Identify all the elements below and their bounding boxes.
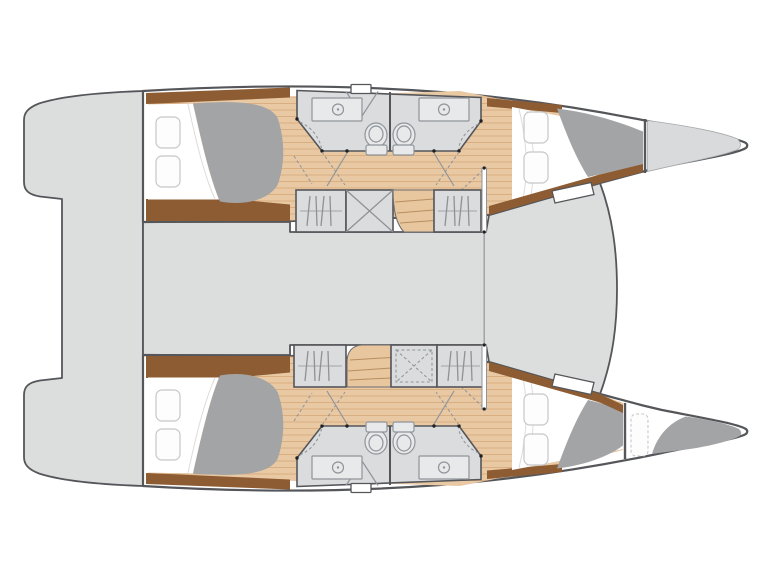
starboard-forepeak-berth <box>631 414 741 456</box>
mast-post <box>482 168 487 232</box>
companionway-stairs <box>347 345 391 387</box>
post-joint-dot <box>483 230 486 233</box>
floor-plan-canvas <box>0 0 770 577</box>
post-joint-dot <box>483 407 486 410</box>
forepeak-pillow <box>631 414 648 456</box>
port-bow-locker <box>648 121 741 172</box>
mast-post <box>482 345 487 409</box>
berth-pillow <box>524 434 548 465</box>
storage-locker <box>391 345 437 387</box>
berth-pillow <box>524 394 548 425</box>
berth-pillow <box>524 152 548 183</box>
post-joint-dot <box>483 343 486 346</box>
companionway-stairs <box>393 190 434 232</box>
hanging-locker <box>434 190 481 232</box>
hanging-locker <box>294 345 346 387</box>
hanging-locker <box>296 190 346 232</box>
post-joint-dot <box>483 166 486 169</box>
catamaran-deck-plan <box>0 0 770 577</box>
starboard-hull <box>143 345 747 493</box>
port-hull <box>143 85 747 233</box>
starboard-wardrobes <box>294 345 485 387</box>
hanging-locker <box>437 345 485 387</box>
berth-pillow <box>524 112 548 143</box>
storage-locker <box>346 190 393 232</box>
aft-transom-platform <box>24 91 143 486</box>
port-wardrobes <box>296 190 481 232</box>
